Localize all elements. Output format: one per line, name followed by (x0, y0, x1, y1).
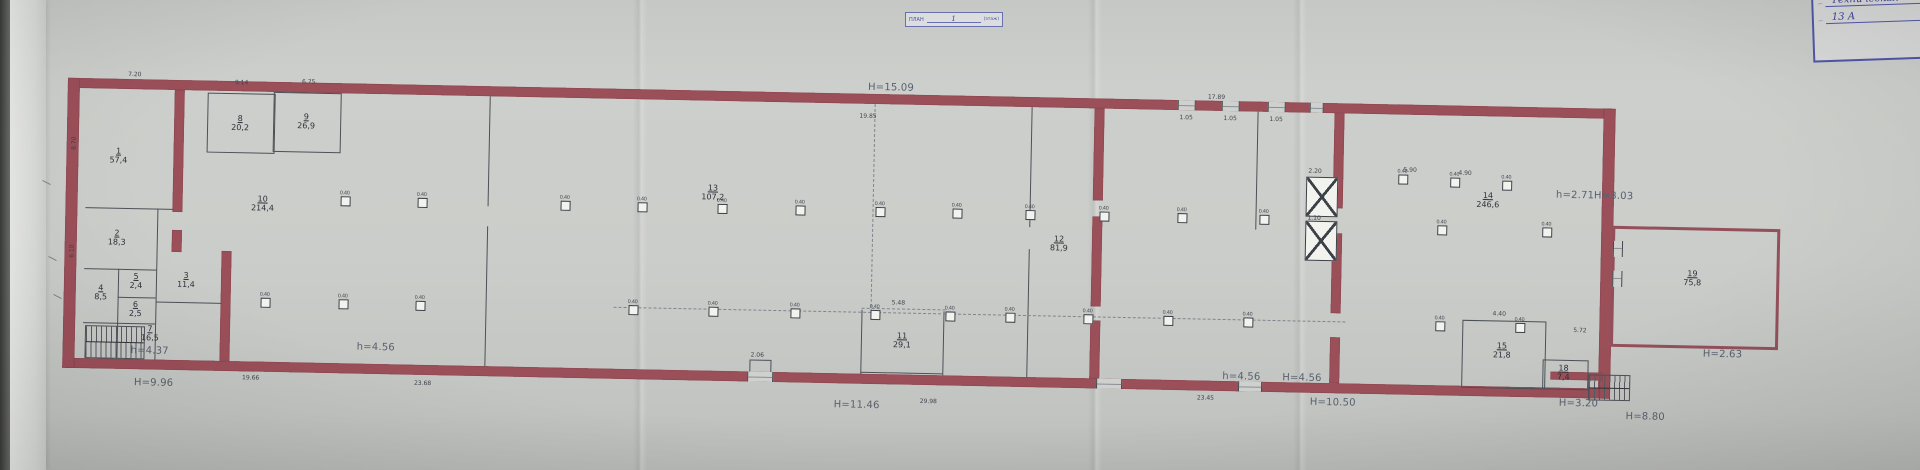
height-annotation: H=2.63 (1703, 349, 1743, 361)
column-marker: 0.40 (875, 207, 885, 217)
dimension-label: 29.98 (920, 398, 937, 405)
room-label: 820,2 (231, 114, 249, 133)
dimension-label: 4.90 (1458, 170, 1471, 177)
axis-dashed-line (614, 307, 1346, 323)
column-dim-label: 0.40 (1242, 311, 1252, 317)
column-dim-label: 0.40 (1162, 310, 1172, 316)
room-number: 7 (141, 324, 159, 334)
column-marker: 0.40 (338, 299, 348, 309)
room-area: 16,5 (141, 333, 159, 343)
dimension-label: 1.05 (1223, 115, 1236, 122)
wall-segment (219, 251, 231, 361)
column-dim-label: 0.40 (1501, 175, 1511, 181)
column-dim-label: 0.40 (1083, 308, 1093, 314)
column-marker: 0.40 (1437, 225, 1447, 235)
room-label: 1129,1 (893, 331, 911, 350)
dimension-label: 4.40 (1493, 310, 1506, 317)
column-marker: 0.40 (1259, 215, 1269, 225)
dimension-label: 6.75 (302, 78, 315, 85)
stamp-small-label: — (1817, 1, 1822, 7)
elevator-shaft-icon (1306, 177, 1339, 218)
column-marker: 0.40 (260, 298, 270, 308)
column-marker: 0.40 (1163, 316, 1173, 326)
column-dim-label: 0.40 (1099, 205, 1109, 211)
column-marker: 0.40 (628, 305, 638, 315)
room-label: 1281,9 (1050, 234, 1068, 253)
partition-line (1026, 249, 1030, 377)
height-annotation: H=3.03 (1594, 190, 1634, 202)
column-dim-label: 0.40 (1259, 209, 1269, 215)
window-opening (1178, 100, 1196, 110)
room-number: 2 (108, 228, 126, 238)
room-number: 9 (297, 112, 315, 122)
room-area: 20,2 (231, 123, 249, 133)
room-area: 246,6 (1476, 200, 1499, 210)
wall-segment (62, 358, 1610, 399)
room-area: 2,5 (129, 309, 142, 318)
room-area: 29,1 (893, 340, 911, 350)
room-label: 1975,8 (1683, 269, 1701, 288)
dimension-label: 6.10 (68, 244, 75, 257)
room-label: 1521,8 (1493, 341, 1511, 360)
room-area: 18,3 (108, 238, 126, 248)
column-marker: 0.40 (790, 308, 800, 318)
column-dim-label: 0.40 (260, 292, 270, 298)
dimension-label: 19.85 (859, 113, 876, 120)
room-number: 4 (94, 283, 107, 292)
column-marker: 0.40 (717, 204, 727, 214)
dimension-label: 19.66 (242, 374, 259, 381)
floor-plan: 0.400.400.400.400.400.400.400.400.400.40… (52, 0, 1821, 470)
column-dim-label: 0.40 (795, 199, 805, 205)
dimension-label: 1.05 (1179, 114, 1192, 121)
column-dim-label: 0.40 (952, 203, 962, 209)
window-opening (1613, 241, 1623, 257)
room-label: 13107,2 (701, 183, 724, 202)
stamp-small-label: — (1818, 18, 1823, 24)
partition-line (488, 96, 491, 206)
room-area: 11,4 (177, 280, 195, 290)
column-marker: 0.40 (560, 201, 570, 211)
column-marker: 0.40 (418, 198, 428, 208)
column-dim-label: 0.40 (1436, 219, 1446, 225)
partition-line (484, 226, 488, 366)
stamp-handwritten-line1: Техническая (1825, 0, 1920, 7)
wall-segment (172, 230, 182, 252)
dimension-label: 5.48 (892, 299, 905, 306)
room-number: 10 (251, 194, 274, 204)
dimension-label: 9.14 (235, 79, 248, 86)
paper-left-edge (0, 0, 10, 470)
column-marker: 0.40 (1099, 211, 1109, 221)
column-dim-label: 0.40 (637, 196, 647, 202)
dimension-label: 23.68 (414, 380, 431, 387)
dimension-label: 2.06 (751, 352, 764, 359)
dimension-label: 7.20 (128, 71, 141, 78)
column-marker: 0.40 (1398, 174, 1408, 184)
wall-segment (1091, 216, 1103, 306)
room-number: 13 (701, 183, 724, 193)
room-number: 6 (129, 300, 142, 309)
height-annotation: H=9.96 (134, 377, 174, 389)
room-number: 14 (1476, 191, 1499, 201)
column-dim-label: 0.40 (1541, 221, 1551, 227)
height-annotation: h=2.71 (1556, 190, 1594, 202)
room-label: 926,9 (297, 112, 315, 131)
column-dim-label: 0.40 (340, 190, 350, 196)
column-dim-label: 0.40 (708, 301, 718, 307)
room-number: 1 (110, 146, 128, 156)
room-label: 10214,4 (251, 194, 274, 213)
room-number: 5 (130, 272, 143, 281)
room-label: 716,5 (141, 324, 159, 343)
column-marker: 0.40 (945, 311, 955, 321)
window-opening (1612, 271, 1622, 287)
room-area: 107,2 (701, 192, 724, 202)
dimension-label: 17.89 (1208, 94, 1225, 101)
room-label: 62,5 (129, 300, 142, 319)
room-area: 75,8 (1683, 278, 1701, 288)
partition-line (860, 310, 862, 374)
room-area: 57,4 (109, 156, 127, 166)
column-marker: 0.40 (1435, 321, 1445, 331)
room-label: 157,4 (109, 146, 127, 165)
wall-segment (172, 90, 184, 212)
column-marker: 0.40 (952, 209, 962, 219)
elevator-shaft-icon (1305, 221, 1338, 262)
room-area: 26,9 (297, 121, 315, 131)
column-dim-label: 0.40 (1005, 307, 1015, 313)
room-area: 7,4 (1557, 373, 1570, 382)
column-marker: 0.40 (1542, 227, 1552, 237)
room-label: 14246,6 (1476, 191, 1499, 210)
column-dim-label: 0.40 (338, 293, 348, 299)
room-area: 2,4 (129, 281, 142, 290)
partition-line (942, 311, 944, 375)
paper-margin-strip (10, 0, 46, 470)
staircase-hatch (1588, 374, 1631, 401)
dimension-label: 5.72 (1573, 327, 1586, 334)
room-number: 19 (1683, 269, 1701, 279)
column-dim-label: 0.40 (790, 302, 800, 308)
room-number: 11 (893, 331, 911, 341)
column-dim-label: 0.40 (417, 192, 427, 198)
wall-segment (1093, 108, 1105, 200)
height-annotation: H=8.80 (1625, 411, 1665, 423)
column-dim-label: 0.40 (945, 305, 955, 311)
height-annotation: H=3.20 (1559, 398, 1599, 410)
partition-line (84, 268, 156, 270)
room-label: 311,4 (177, 271, 195, 290)
stamp-handwritten-line2: 13 А (1826, 9, 1920, 24)
column-marker: 0.40 (415, 301, 425, 311)
window-opening (1238, 381, 1262, 391)
height-annotation: h=4.56 (357, 342, 395, 354)
partition-line (85, 207, 173, 210)
dimension-label: 1.10 (1307, 215, 1320, 222)
height-annotation: H=15.09 (868, 82, 914, 94)
window-opening (1096, 378, 1122, 389)
room-label: 218,3 (108, 228, 126, 247)
column-dim-label: 0.40 (870, 304, 880, 310)
height-annotation: h=4.56 (1222, 371, 1260, 383)
room-number: 3 (177, 271, 195, 281)
column-marker: 0.40 (341, 196, 351, 206)
column-marker: 0.40 (1243, 317, 1253, 327)
column-marker: 0.40 (795, 205, 805, 215)
column-marker: 0.40 (1515, 323, 1525, 333)
room-area: 81,9 (1050, 244, 1068, 254)
height-annotation: h=4.37 (130, 345, 168, 357)
column-dim-label: 0.40 (1025, 204, 1035, 210)
column-dim-label: 0.40 (1514, 317, 1524, 323)
document-stamp: — Техническая — 13 А — (1811, 0, 1920, 63)
column-dim-label: 0.40 (628, 299, 638, 305)
column-dim-label: 0.40 (875, 201, 885, 207)
room-area: 8,5 (94, 292, 107, 301)
dimension-label: 5.90 (1403, 167, 1416, 174)
column-marker: 0.40 (1005, 313, 1015, 323)
wall-segment (1089, 320, 1100, 378)
wall-segment (1329, 337, 1340, 383)
column-marker: 0.40 (1450, 178, 1460, 188)
column-dim-label: 0.40 (1177, 207, 1187, 213)
dimension-label: 1.05 (1269, 116, 1282, 123)
dimension-label: 23.45 (1197, 394, 1214, 401)
column-dim-label: 0.40 (415, 295, 425, 301)
dimension-label: 2.20 (1308, 168, 1321, 175)
height-annotation: H=10.50 (1310, 397, 1356, 409)
window-opening (747, 371, 773, 382)
scanned-floor-plan-photo: ПЛАН 1 (этаж) — Техническая — 13 А — 0.4… (0, 0, 1920, 470)
column-dim-label: 0.40 (560, 195, 570, 201)
column-marker: 0.40 (1177, 213, 1187, 223)
height-annotation: H=4.56 (1282, 372, 1322, 384)
room-label: 48,5 (94, 283, 107, 302)
window-opening (1310, 103, 1324, 113)
partition-line (156, 302, 222, 304)
window-opening (1268, 102, 1286, 112)
wall-segment (62, 78, 80, 368)
column-marker: 0.40 (1502, 181, 1512, 191)
room-number: 8 (231, 114, 249, 124)
room-number: 12 (1050, 234, 1068, 244)
column-marker: 0.40 (637, 202, 647, 212)
partition-line (118, 297, 156, 299)
room-area: 214,4 (251, 203, 274, 213)
room-label: 52,4 (129, 272, 142, 291)
column-dim-label: 0.40 (1434, 315, 1444, 321)
room-number: 18 (1557, 364, 1570, 373)
room-number: 15 (1493, 341, 1511, 351)
window-opening (1222, 101, 1240, 111)
room-area: 21,8 (1493, 350, 1511, 360)
column-marker: 0.40 (870, 310, 880, 320)
column-marker: 0.40 (1025, 210, 1035, 220)
dimension-label: 8.70 (71, 136, 78, 149)
room-outline (1610, 226, 1780, 350)
room-label: 187,4 (1557, 364, 1570, 383)
column-marker: 0.40 (1083, 314, 1093, 324)
column-marker: 0.40 (708, 307, 718, 317)
height-annotation: H=11.46 (834, 399, 880, 411)
